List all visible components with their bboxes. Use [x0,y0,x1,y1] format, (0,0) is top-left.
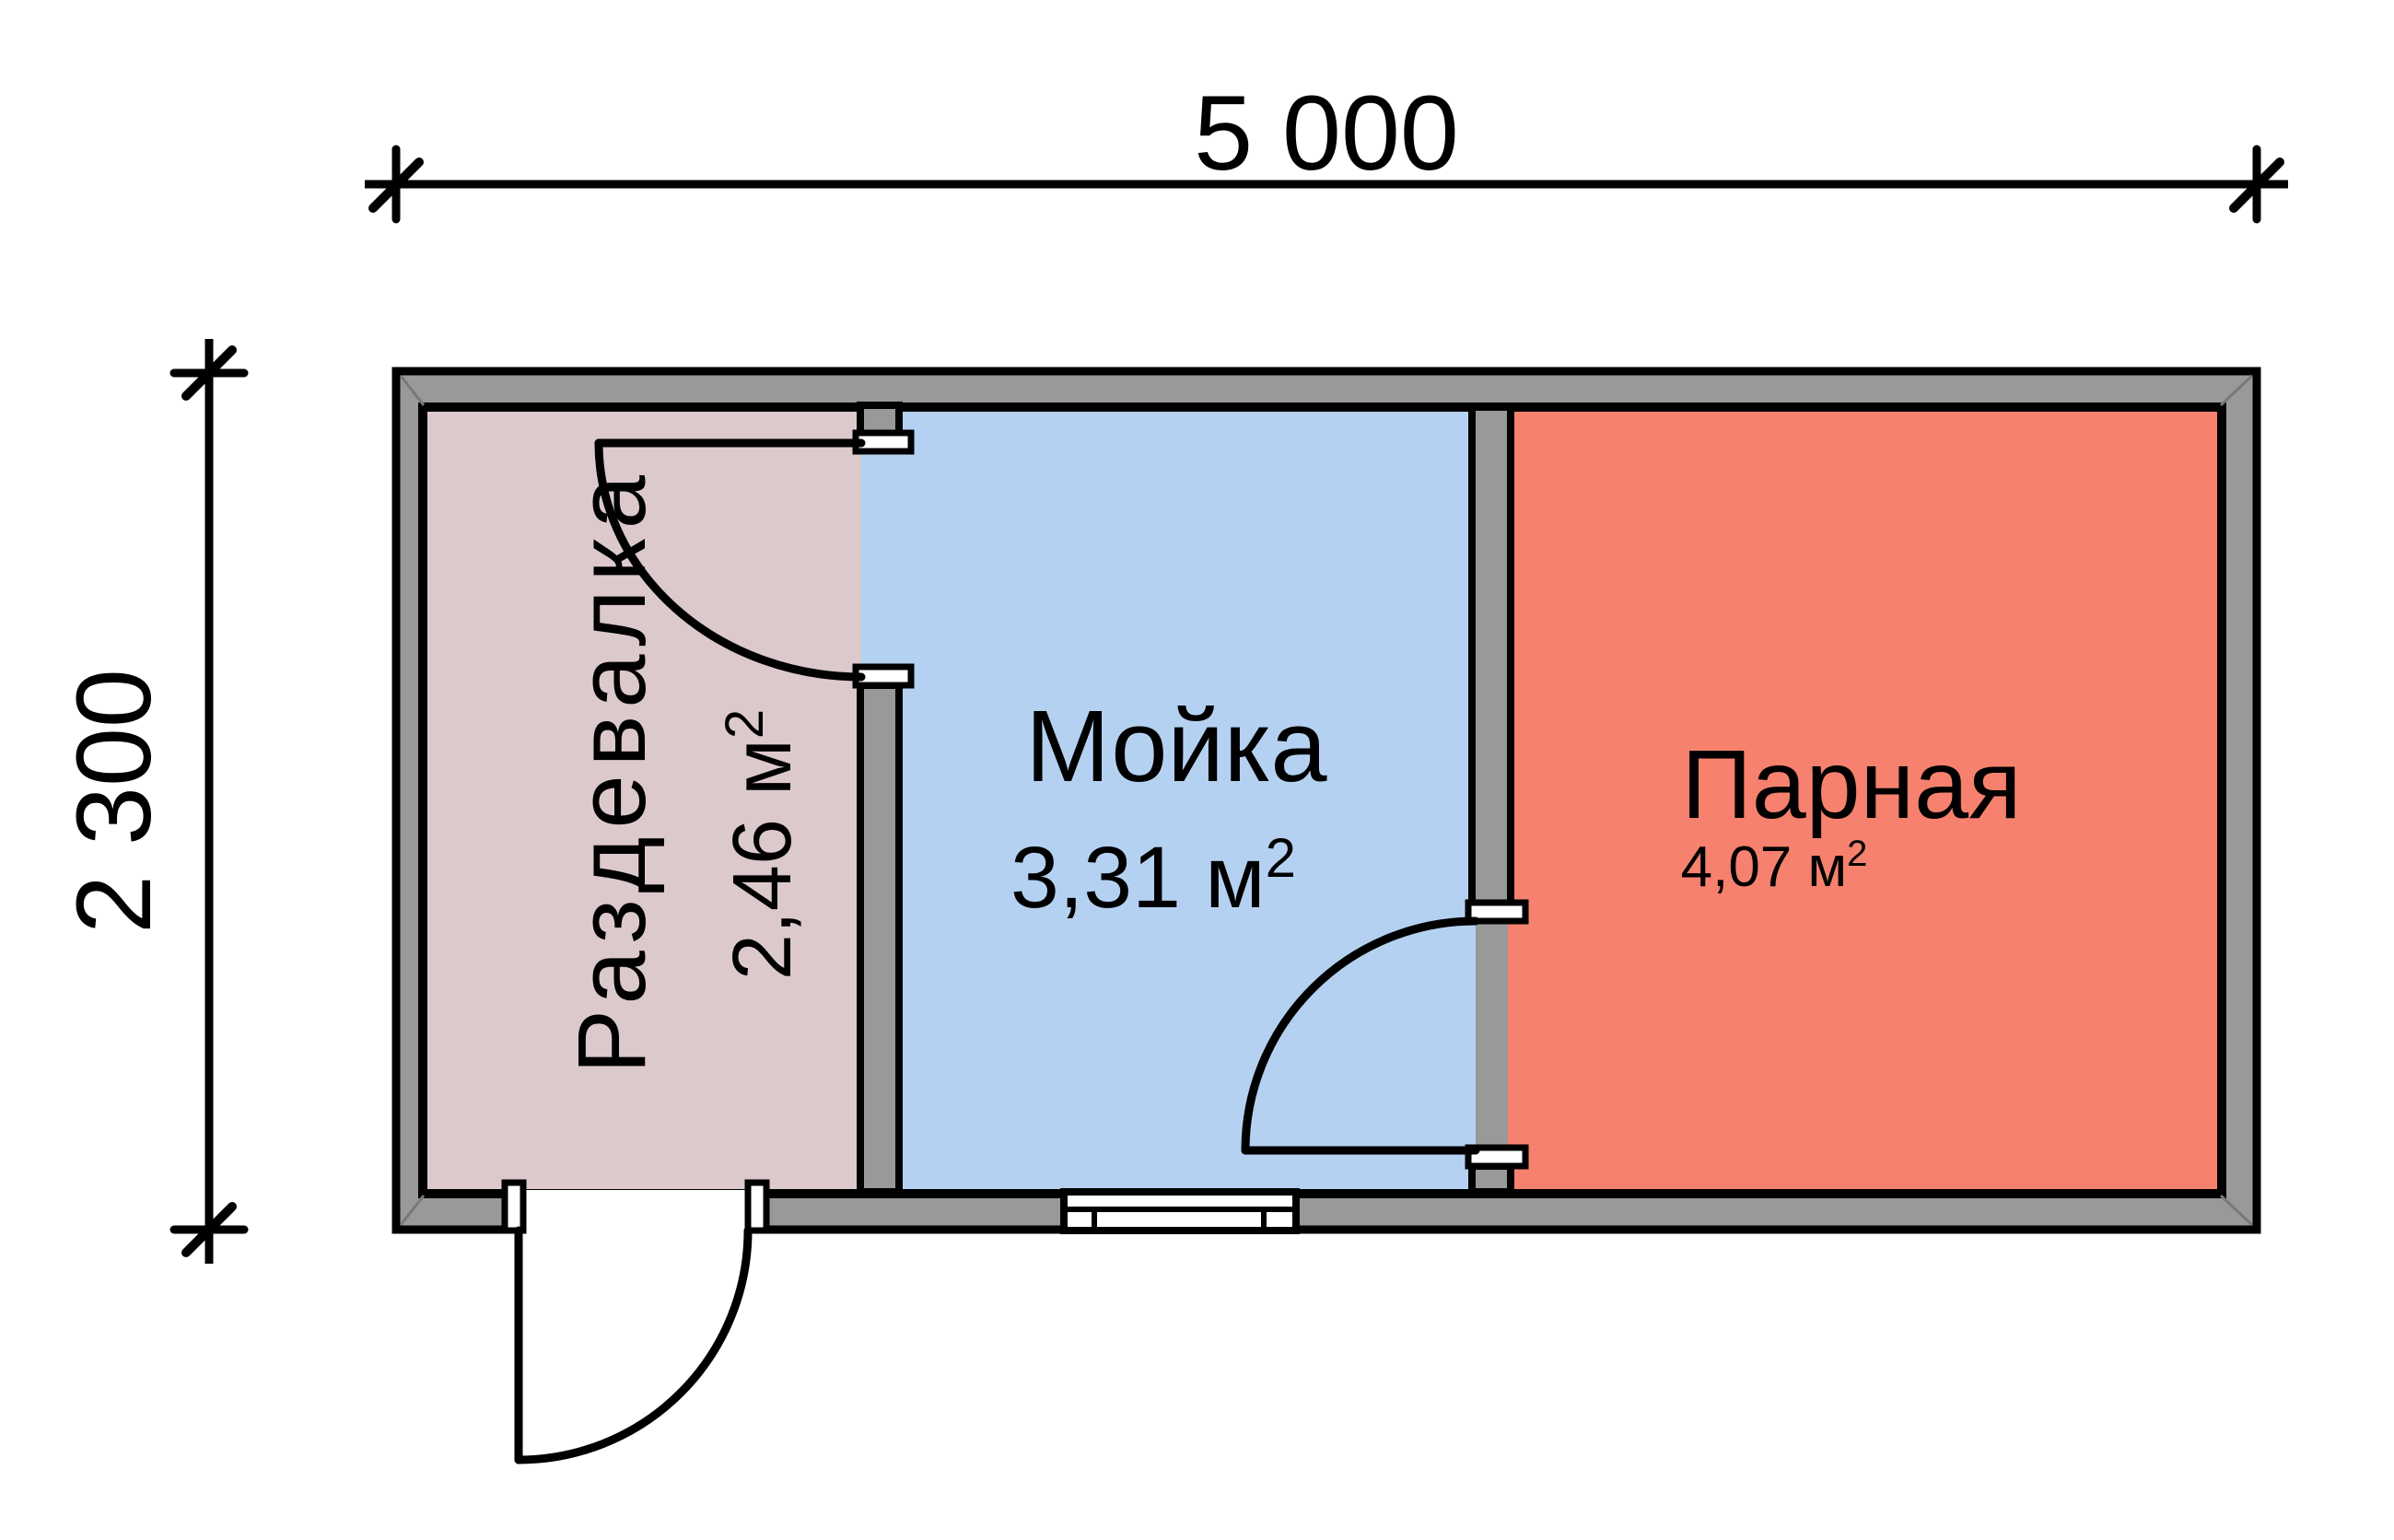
partition2-upper-wall [1472,407,1511,904]
dimension-top-label: 5 000 [1194,75,1459,192]
room-razdevalka-area-value: 2,46 м [717,739,809,980]
room-parnaya-area-sup: 2 [1847,834,1867,874]
room-moyka-area-sup: 2 [1266,827,1296,889]
exterior-door-opening [523,1190,748,1234]
room-razdevalka-area-sup: 2 [715,709,775,739]
floor-plan-drawing: 5 000 2 300 [0,0,2394,1540]
exterior-door-jamb-left [505,1183,523,1231]
dimension-left: 2 300 [55,339,244,1264]
exterior-door-swing-arc [519,1231,748,1460]
room-parnaya-label: Парная [1682,730,2022,839]
room-parnaya-area: 4,07 м2 [1681,834,1868,899]
room-moyka-area-value: 3,31 м [1010,829,1266,927]
exterior-door-jamb-right [748,1183,766,1231]
room-moyka-label: Мойка [1025,690,1327,803]
dimension-top: 5 000 [365,75,2288,219]
room-moyka-area: 3,31 м2 [1010,827,1296,927]
dimension-left-label: 2 300 [55,669,173,934]
room-razdevalka-area: 2,46 м2 [715,709,809,980]
partition1-lower-wall [860,685,899,1192]
room-parnaya-area-value: 4,07 м [1681,835,1848,899]
window-symbol [1064,1192,1296,1231]
partition2-bottom-stub [1472,1166,1511,1192]
floor-plan-page: 5 000 2 300 [0,0,2394,1540]
exterior-door [505,1183,766,1460]
